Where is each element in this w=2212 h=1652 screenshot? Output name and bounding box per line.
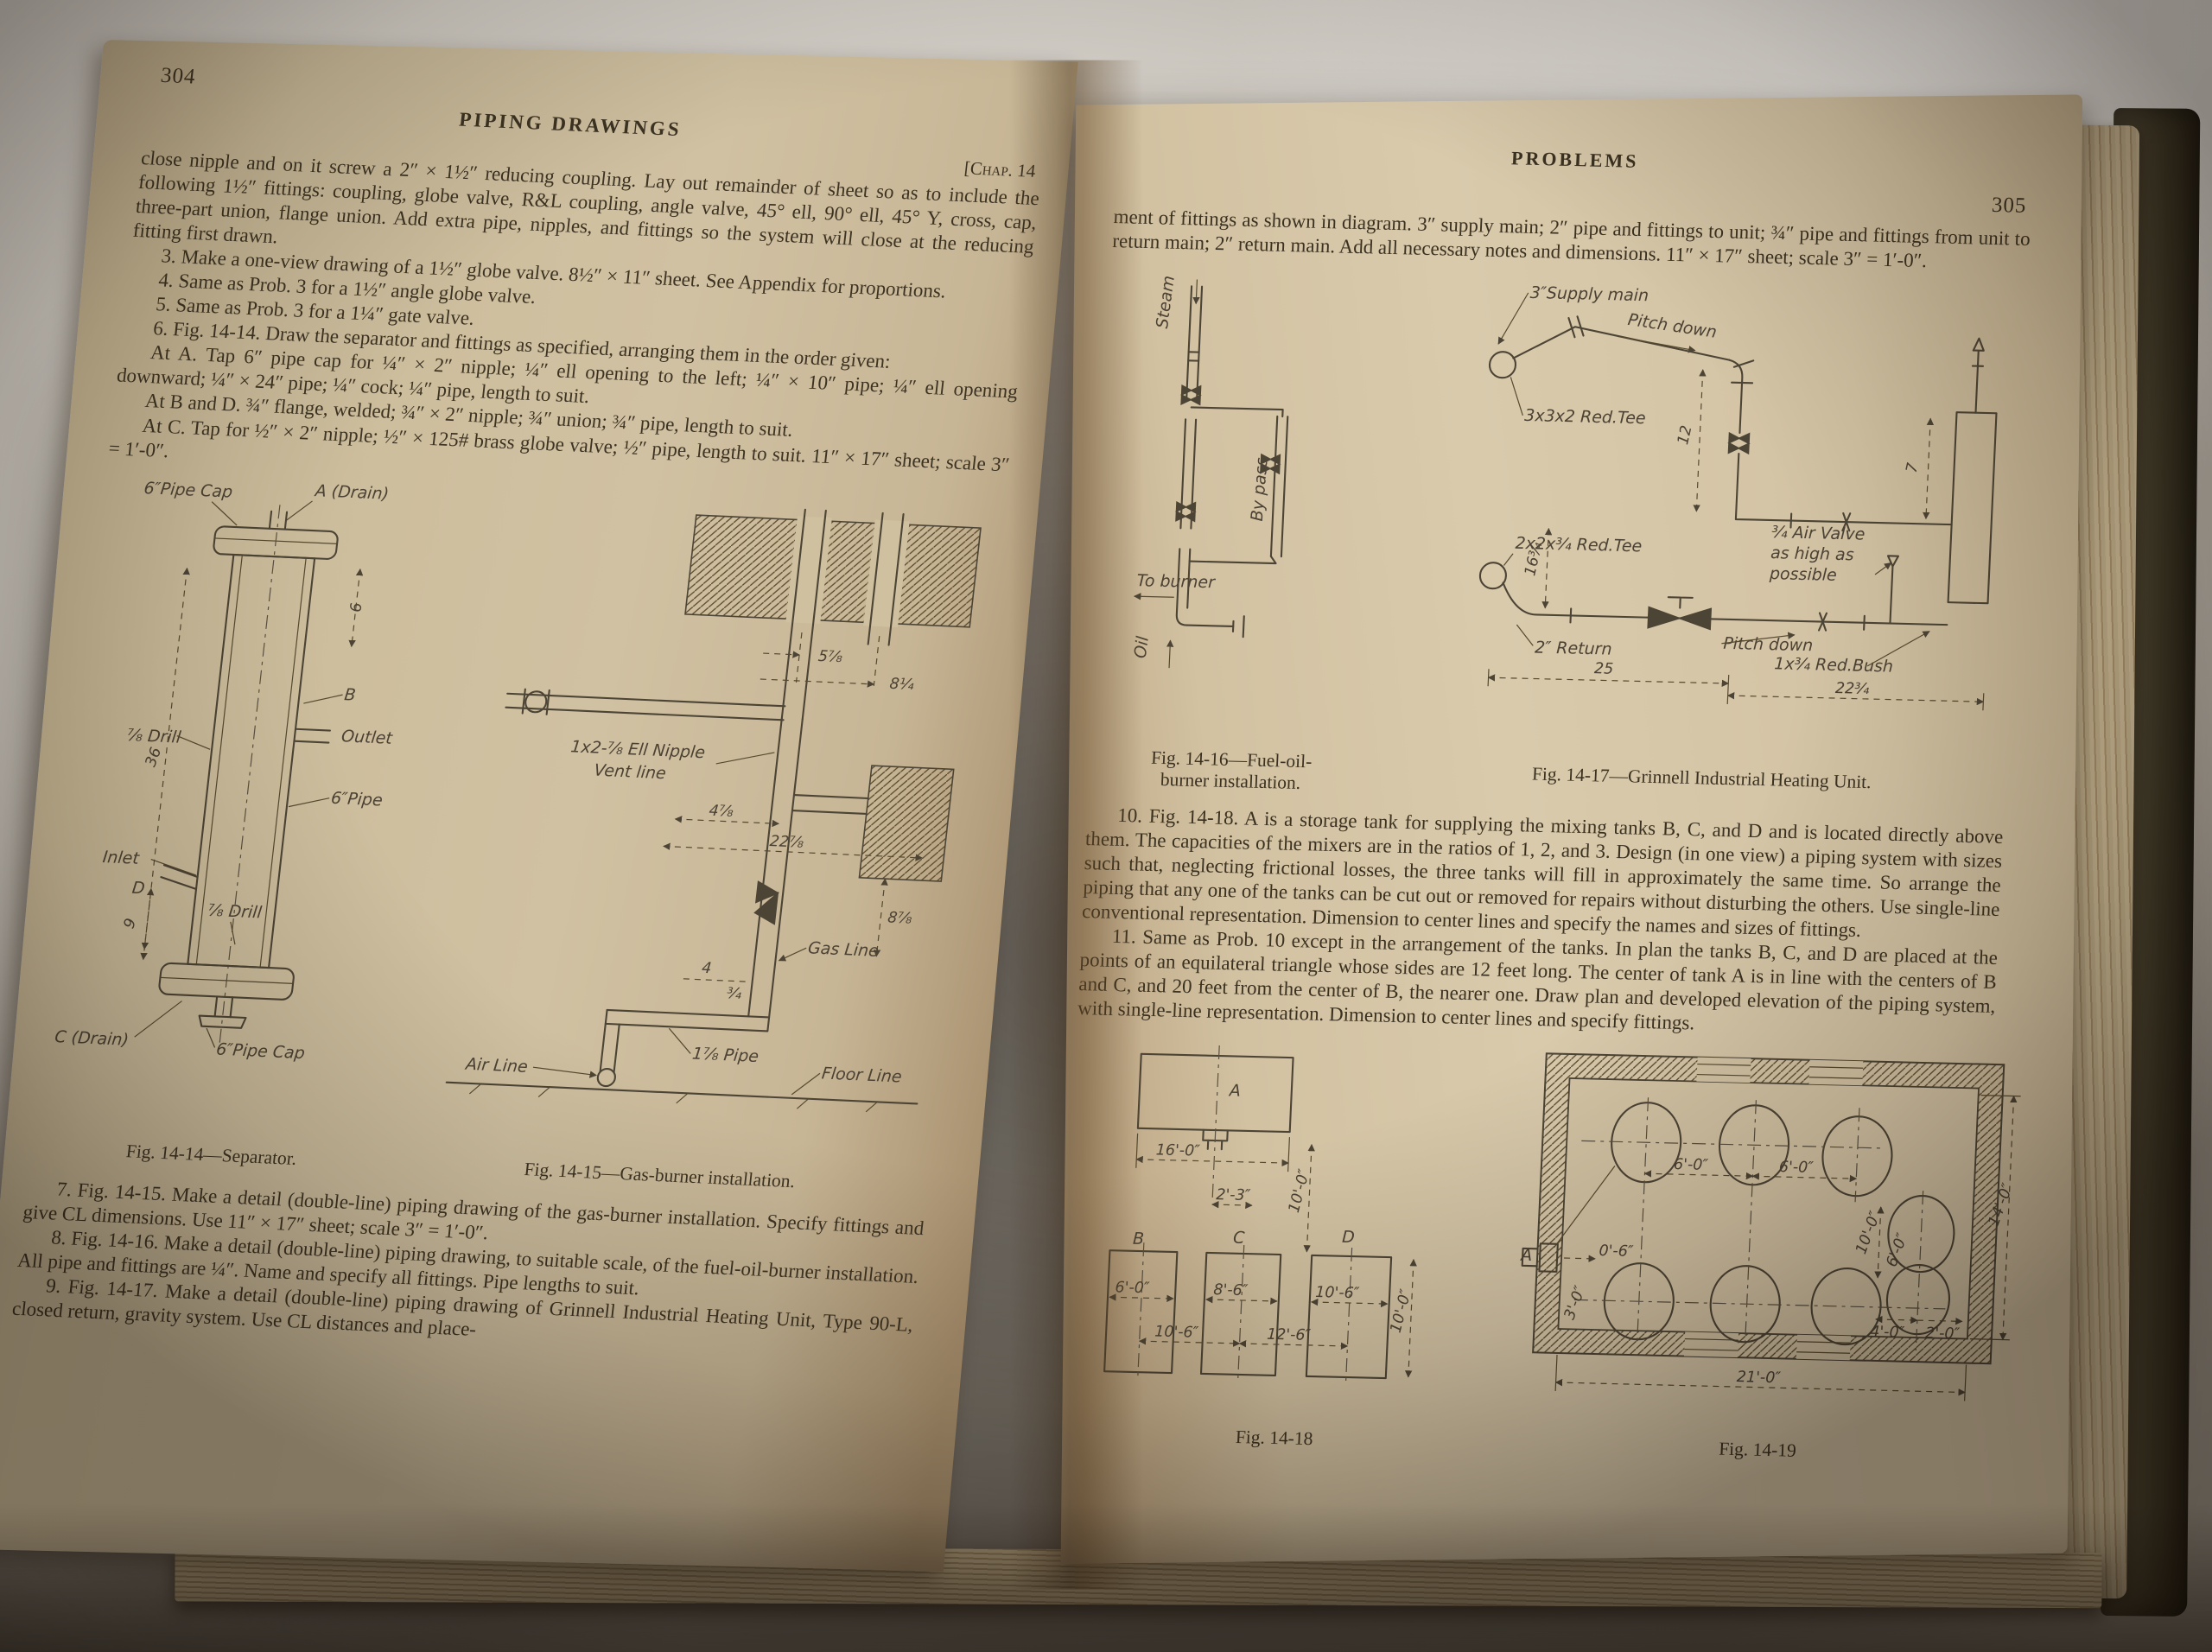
dim-9: 9 (121, 916, 141, 931)
tank-d-label: D (1342, 1227, 1356, 1246)
label-by-pass: By pass (1248, 457, 1272, 522)
caption-fig-14-16: Fig. 14-16—Fuel-oil- burner installation… (1088, 746, 1375, 795)
dim-2-3: 2'-3″ (1216, 1186, 1251, 1204)
dim-4-0: 4'-0″ (1870, 1323, 1905, 1341)
dim-6-0-top1: 6'-0″ (1674, 1156, 1709, 1174)
dim-10-6-spacing: 10'-6″ (1154, 1323, 1199, 1341)
label-steam: Steam (1153, 275, 1179, 329)
label-outlet: Outlet (340, 727, 395, 748)
label-to-burner: To burner (1136, 571, 1216, 592)
label-drill-top: ⅞ Drill (126, 726, 183, 747)
label-1-7-8-pipe: 1⅞ Pipe (691, 1044, 760, 1065)
label-pitch-down-1: Pitch down (1626, 310, 1718, 342)
dim-5-7-8: 5⅞ (817, 648, 843, 666)
dim-12: 12 (1675, 424, 1695, 447)
right-figures-bottom-row: A 16'-0″ 2'-3″ 10'-0″ B C D (1058, 1031, 1993, 1444)
dim-36: 36 (143, 745, 166, 768)
figure-14-14-separator: 6″Pipe Cap A (Drain) 6 B Outlet (44, 471, 491, 1091)
label-air-valve-2: as high as (1770, 543, 1855, 564)
figure-14-15-gas-burner: 5⅞ 8¼ 1x2-⅞ Ell Nipple Vent line 4⅞ 22⅞ (429, 488, 996, 1115)
label-red-tee-1: 3x3x2 Red.Tee (1524, 406, 1646, 428)
right-page[interactable]: PROBLEMS 305 ment of fittings as shown i… (1061, 94, 2083, 1563)
label-2-return: 2″ Return (1535, 639, 1612, 659)
figure-14-19-plan: 6'-0″ 6'-0″ 10'-0″ 6'-0″ A 0'-6″ 3'-0″ 4… (1509, 1042, 2025, 1417)
label-drill-bot: ⅞ Drill (207, 900, 264, 922)
label-red-bush: 1x¾ Red.Bush (1774, 654, 1894, 676)
problem-10: 10. Fig. 14-18. A is a storage tank for … (1082, 803, 2004, 946)
chapter-reference: [Chap. 14 (963, 157, 1037, 182)
dim-6-0-top2: 6'-0″ (1778, 1159, 1814, 1177)
left-page-content: 304 PIPING DRAWINGS [Chap. 14 close nipp… (11, 63, 1050, 1361)
label-inlet: Inlet (102, 848, 142, 868)
label-air-valve-1: ¾ Air Valve (1771, 523, 1866, 544)
right-page-number: 305 (1991, 194, 2027, 219)
note-vent-line: Vent line (593, 760, 667, 783)
caption-fig-14-17: Fig. 14-17—Grinnell Industrial Heating U… (1399, 760, 2004, 797)
label-c-drain: C (Drain) (54, 1027, 130, 1050)
dim-12-6-spacing: 12'-6″ (1267, 1325, 1312, 1344)
dim-10-6-d: 10'-6″ (1315, 1284, 1360, 1302)
label-gas-line: Gas Line (807, 938, 880, 961)
label-oil: Oil (1131, 635, 1153, 660)
label-d: D (131, 878, 146, 898)
dim-21-0: 21'-0″ (1736, 1369, 1781, 1387)
dim-0-6: 0'-6″ (1599, 1242, 1634, 1261)
dim-22-7-8: 22⅞ (769, 833, 804, 852)
dim-6: 6 (347, 602, 365, 613)
dim-4-7-8: 4⅞ (709, 802, 734, 820)
dim-7: 7 (1904, 461, 1923, 474)
figure-14-17-grinnell-unit: 3″Supply main 3x3x2 Red.Tee Pitch down (1427, 270, 2026, 734)
note-ell-nipple: 1x2-⅞ Ell Nipple (569, 737, 706, 762)
label-pipe-cap-bot: 6″Pipe Cap (215, 1039, 306, 1063)
dim-2-0: 2'-0″ (1925, 1325, 1961, 1343)
tank-b-label: B (1133, 1229, 1145, 1248)
label-pipe-cap-top: 6″Pipe Cap (143, 479, 234, 502)
figure-14-18-tanks: A 16'-0″ 2'-3″ 10'-0″ B C D (1096, 1035, 1474, 1389)
right-running-head: PROBLEMS (1116, 137, 2034, 182)
left-running-head: PIPING DRAWINGS (146, 94, 995, 155)
tank-a-label: A (1227, 1081, 1241, 1100)
left-page[interactable]: 304 PIPING DRAWINGS [Chap. 14 close nipp… (0, 40, 1078, 1572)
dim-25: 25 (1594, 660, 1614, 678)
label-b: B (343, 685, 356, 705)
dim-8-1-4: 8¼ (888, 675, 914, 693)
dim-22-3-4: 22¾ (1835, 680, 1870, 698)
dim-8-6: 8'-6″ (1213, 1281, 1249, 1299)
label-6-pipe: 6″Pipe (330, 788, 384, 810)
right-page-content: PROBLEMS 305 ment of fittings as shown i… (1058, 137, 2034, 1478)
label-air-valve-3: possible (1769, 564, 1838, 585)
label-air-line: Air Line (463, 1054, 529, 1076)
dim-4: 4 (701, 959, 712, 976)
label-supply-main: 3″Supply main (1529, 283, 1649, 305)
tank-c-label: C (1233, 1228, 1246, 1247)
dim-10-0-b: 10'-0″ (1388, 1287, 1415, 1334)
dim-16-0: 16'-0″ (1155, 1141, 1200, 1160)
right-figures-top-row: Steam By pass To burner Oil (1090, 262, 2028, 768)
label-floor-line: Floor Line (821, 1064, 903, 1086)
label-a-drain: A (Drain) (313, 481, 390, 504)
label-pitch-down-2: Pitch down (1723, 634, 1814, 656)
dim-3-4: ¾ (726, 985, 742, 1003)
dim-8-7-8: 8⅞ (887, 909, 912, 927)
left-page-number: 304 (160, 64, 198, 90)
dim-6-0: 6'-0″ (1115, 1279, 1150, 1297)
left-figures-row: 6″Pipe Cap A (Drain) 6 B Outlet (32, 471, 1005, 1177)
open-book: 304 PIPING DRAWINGS [Chap. 14 close nipp… (28, 16, 2206, 1638)
figure-14-16-fuel-oil-burner: Steam By pass To burner Oil (1119, 268, 1422, 681)
